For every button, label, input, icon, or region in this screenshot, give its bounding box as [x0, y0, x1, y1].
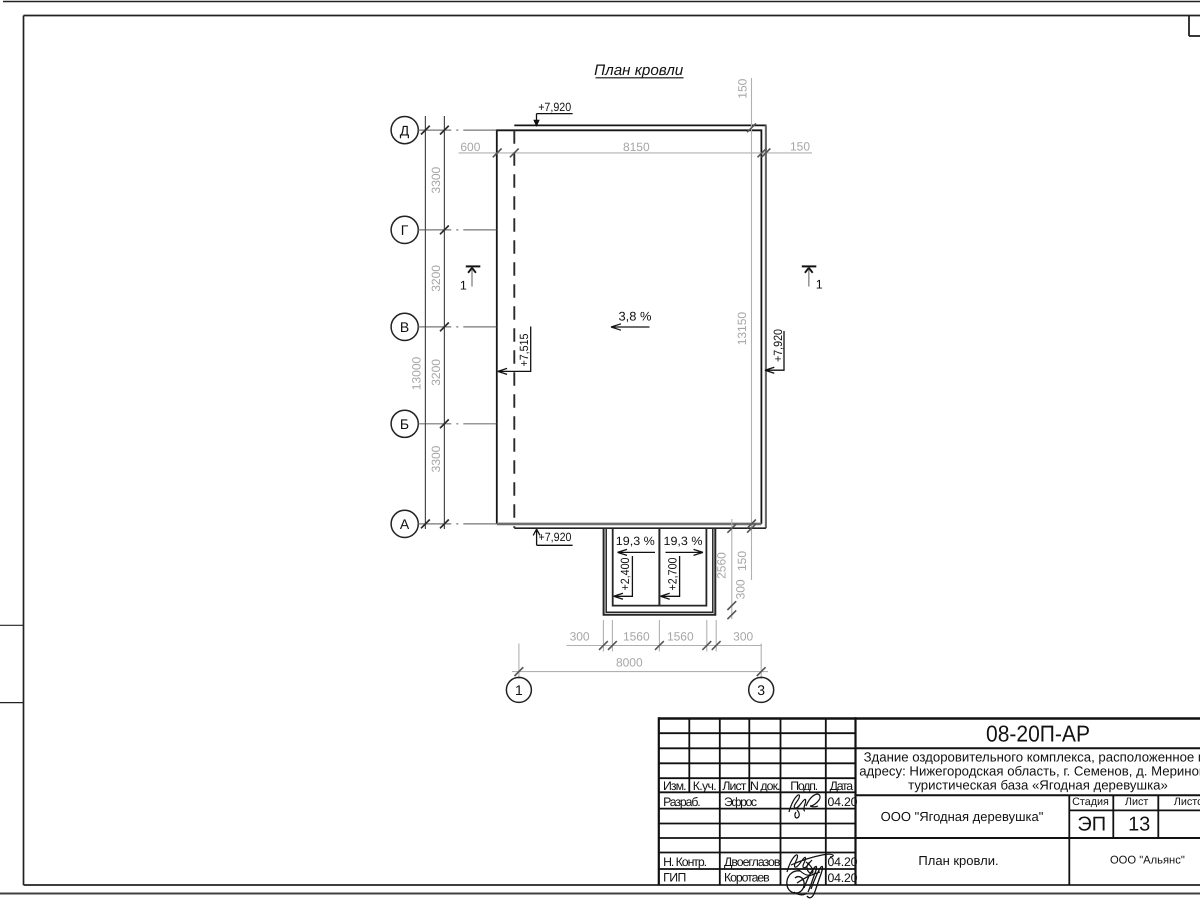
svg-text:150: 150 — [735, 551, 749, 571]
svg-text:8150: 8150 — [623, 140, 650, 154]
svg-text:1560: 1560 — [623, 629, 650, 643]
svg-text:План кровли: План кровли — [594, 62, 684, 79]
svg-text:Двоеглазов: Двоеглазов — [724, 855, 780, 869]
svg-text:300: 300 — [733, 629, 753, 643]
svg-text:19,3 %: 19,3 % — [664, 534, 703, 548]
svg-text:ГИП: ГИП — [663, 871, 686, 885]
svg-text:13000: 13000 — [409, 356, 423, 390]
svg-text:ЭП: ЭП — [1077, 813, 1106, 835]
svg-text:+7,920: +7,920 — [539, 530, 572, 544]
svg-text:+7,515: +7,515 — [517, 333, 531, 366]
svg-text:К.уч.: К.уч. — [693, 779, 717, 793]
svg-text:19,3 %: 19,3 % — [616, 534, 655, 548]
svg-text:600: 600 — [460, 140, 480, 154]
svg-text:1: 1 — [515, 682, 523, 698]
svg-text:Д: Д — [400, 122, 410, 138]
svg-text:3200: 3200 — [429, 359, 443, 386]
svg-text:08-20П-АР: 08-20П-АР — [986, 721, 1090, 747]
svg-text:Листов: Листов — [1174, 796, 1200, 808]
svg-text:ООО "Ягодная деревушка": ООО "Ягодная деревушка" — [881, 809, 1044, 824]
svg-text:+2,400: +2,400 — [618, 557, 632, 590]
svg-text:13150: 13150 — [735, 312, 749, 346]
svg-text:1: 1 — [816, 278, 823, 292]
svg-text:Коротаев: Коротаев — [724, 871, 770, 885]
svg-text:04.20: 04.20 — [828, 871, 858, 885]
svg-text:Н. Контр.: Н. Контр. — [663, 855, 707, 869]
svg-text:Г: Г — [401, 222, 409, 238]
svg-text:Изм.: Изм. — [663, 779, 687, 793]
svg-text:План кровли.: План кровли. — [918, 853, 998, 868]
svg-text:+7,920: +7,920 — [771, 329, 785, 362]
svg-text:N док.: N док. — [750, 779, 781, 793]
svg-text:Разраб.: Разраб. — [663, 795, 701, 809]
svg-text:Стадия: Стадия — [1072, 796, 1109, 808]
svg-text:адресу: Нижегородская область,: адресу: Нижегородская область, г. Семено… — [859, 764, 1200, 779]
svg-text:Лист: Лист — [1125, 796, 1149, 808]
svg-text:300: 300 — [570, 629, 590, 643]
svg-text:туристическая база «Ягодная де: туристическая база «Ягодная деревушка» — [908, 778, 1168, 793]
svg-text:3200: 3200 — [429, 265, 443, 292]
svg-text:300: 300 — [734, 579, 748, 599]
svg-text:+7,920: +7,920 — [538, 100, 571, 114]
svg-text:3: 3 — [757, 682, 765, 698]
svg-text:Здание оздоровительного компле: Здание оздоровительного комплекса, распо… — [864, 750, 1200, 765]
svg-text:Подп.: Подп. — [790, 779, 818, 793]
svg-text:В: В — [400, 319, 409, 335]
svg-text:Эфрос: Эфрос — [724, 795, 757, 809]
svg-text:+2,700: +2,700 — [665, 557, 679, 590]
svg-text:1: 1 — [460, 279, 467, 293]
svg-text:Б: Б — [400, 416, 409, 432]
svg-text:150: 150 — [790, 139, 810, 153]
svg-text:А: А — [400, 516, 410, 532]
svg-text:3300: 3300 — [429, 445, 443, 472]
svg-text:8000: 8000 — [616, 656, 643, 670]
svg-text:3300: 3300 — [429, 166, 443, 193]
svg-text:04.20: 04.20 — [828, 795, 858, 809]
svg-text:3,8 %: 3,8 % — [619, 310, 652, 324]
svg-text:13: 13 — [1128, 813, 1150, 835]
svg-text:1560: 1560 — [667, 629, 694, 643]
svg-text:150: 150 — [735, 78, 749, 98]
svg-text:2560: 2560 — [714, 552, 728, 579]
svg-text:Лист: Лист — [722, 779, 746, 793]
svg-text:Дата: Дата — [830, 779, 854, 793]
svg-text:ООО "Альянс": ООО "Альянс" — [1110, 854, 1185, 866]
